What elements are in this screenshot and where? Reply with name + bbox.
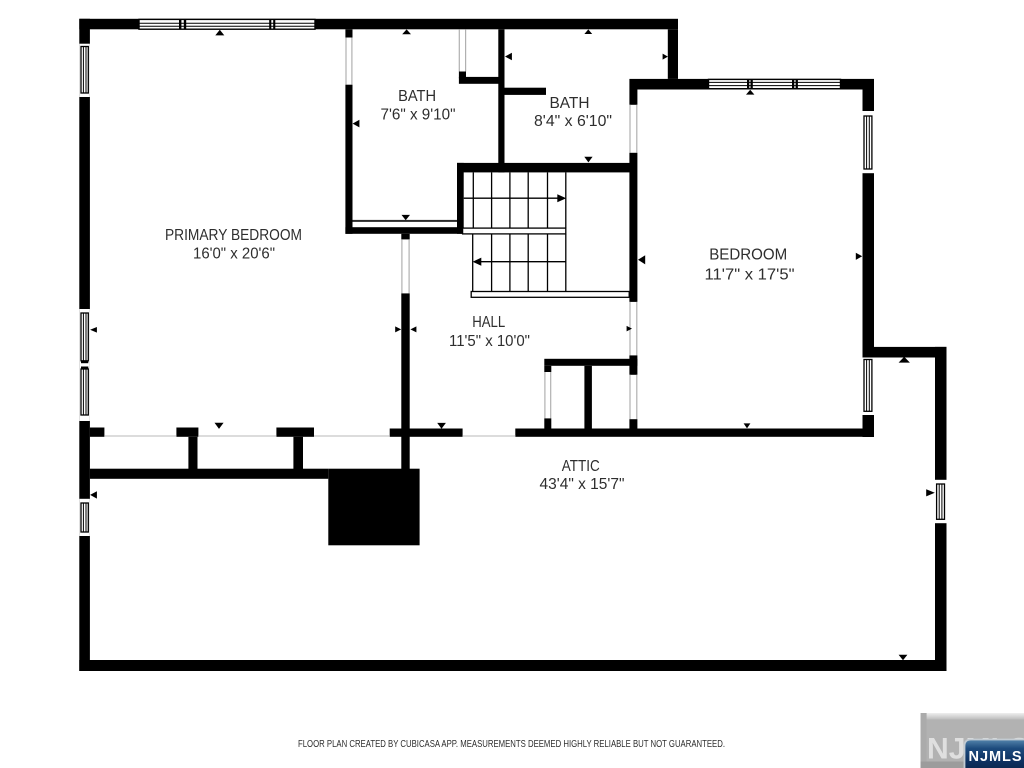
svg-text:BEDROOM: BEDROOM [709, 247, 787, 264]
svg-text:FLOOR PLAN CREATED BY CUBICASA: FLOOR PLAN CREATED BY CUBICASA APP. MEAS… [298, 739, 725, 750]
svg-text:8'4" x 6'10": 8'4" x 6'10" [534, 113, 612, 130]
svg-text:PRIMARY BEDROOM: PRIMARY BEDROOM [165, 227, 302, 244]
svg-text:ATTIC: ATTIC [562, 458, 600, 475]
svg-text:11'5" x 10'0": 11'5" x 10'0" [449, 333, 530, 350]
svg-text:43'4" x 15'7": 43'4" x 15'7" [540, 476, 625, 493]
svg-text:NJMLS: NJMLS [969, 748, 1023, 765]
svg-text:11'7" x 17'5": 11'7" x 17'5" [705, 267, 795, 284]
svg-text:HALL: HALL [472, 314, 505, 331]
svg-text:BATH: BATH [550, 95, 590, 112]
svg-text:16'0" x 20'6": 16'0" x 20'6" [193, 246, 275, 263]
svg-text:7'6" x 9'10": 7'6" x 9'10" [381, 106, 456, 123]
svg-text:BATH: BATH [398, 88, 436, 105]
